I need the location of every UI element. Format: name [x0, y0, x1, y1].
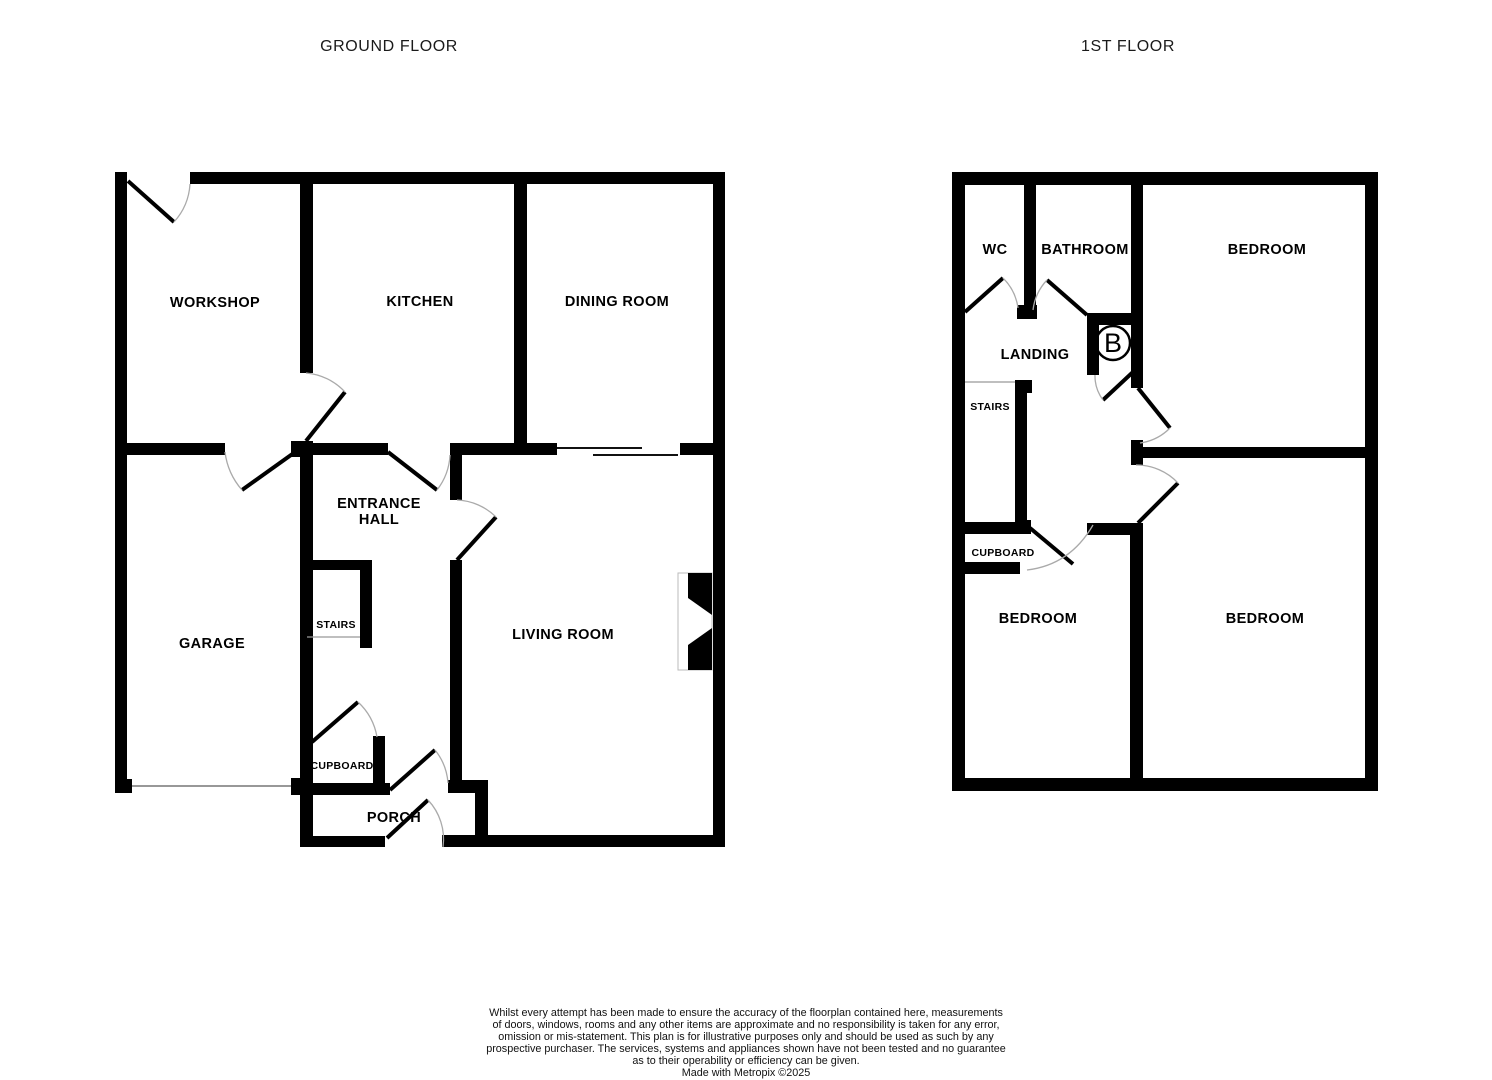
door-leaf — [390, 750, 435, 790]
door-swing-arc — [358, 702, 377, 737]
room-label-bathroom: BATHROOM — [1041, 242, 1129, 258]
door-swing-arc — [435, 750, 448, 783]
room-label-bedroom-top: BEDROOM — [1228, 242, 1307, 258]
wall-segment — [300, 836, 385, 847]
wall-segment — [300, 441, 313, 795]
door-leaf — [1103, 372, 1133, 400]
wall-segment — [1024, 185, 1036, 317]
room-label-porch: PORCH — [367, 810, 421, 826]
wall-segment — [1365, 172, 1378, 790]
room-label-bedroom-left: BEDROOM — [999, 611, 1078, 627]
room-label-stairs-first: STAIRS — [970, 401, 1010, 413]
wall-segment — [450, 443, 462, 500]
wall-segment — [450, 443, 557, 455]
wall-segment — [1087, 523, 1142, 535]
door-leaf — [306, 392, 345, 441]
room-label-garage: GARAGE — [179, 636, 245, 652]
door-swing-arc — [437, 455, 450, 490]
wall-segment — [1131, 447, 1367, 458]
wall-segment — [965, 522, 1030, 534]
room-label-entrance-hall: ENTRANCE — [337, 496, 421, 512]
room-label-landing: LANDING — [1001, 347, 1070, 363]
floorplan-canvas: GROUND FLOOR 1ST FLOOR — [0, 0, 1492, 1080]
wall-segment — [1015, 380, 1027, 523]
door-leaf — [457, 517, 496, 560]
door-leaf — [1138, 388, 1170, 428]
door-leaf — [388, 452, 437, 490]
wall-segment — [313, 560, 361, 570]
wall-segment — [475, 793, 488, 836]
disclaimer-line: Whilst every attempt has been made to en… — [0, 1007, 1492, 1019]
wall-segment — [300, 184, 313, 373]
room-label-workshop: WORKSHOP — [170, 295, 260, 311]
door-swing-arc — [174, 184, 190, 222]
wall-segment — [360, 560, 372, 648]
disclaimer-line: as to their operability or efficiency ca… — [0, 1055, 1492, 1067]
room-label-bedroom-right: BEDROOM — [1226, 611, 1305, 627]
wall-segment — [713, 172, 725, 847]
door-swing-arc — [457, 500, 496, 517]
room-label-entrance-hall: HALL — [359, 512, 399, 528]
room-label-dining-room: DINING ROOM — [565, 294, 669, 310]
door-swing-arc — [1095, 375, 1103, 400]
wall-segment — [442, 835, 725, 847]
room-label-kitchen: KITCHEN — [386, 294, 453, 310]
door-leaf — [1030, 528, 1073, 564]
metropix-credit: Made with Metropix ©2025 — [0, 1067, 1492, 1079]
wall-segment — [115, 172, 127, 793]
door-swing-arc — [1003, 278, 1018, 308]
wall-segment — [952, 172, 1378, 185]
room-label-cupboard-first: CUPBOARD — [971, 547, 1034, 559]
door-swing-arc — [1136, 465, 1178, 483]
room-label-wc: WC — [983, 242, 1008, 258]
wall-segment — [680, 443, 713, 455]
wall-segment — [373, 736, 385, 783]
wall-segment — [1131, 185, 1143, 388]
wall-segment — [1130, 523, 1143, 778]
door-leaf — [242, 450, 298, 490]
wall-segment — [313, 443, 388, 455]
first-floor-title: 1ST FLOOR — [1081, 38, 1175, 55]
wall-segment — [450, 560, 462, 782]
floorplan-page: GROUND FLOOR 1ST FLOOR — [0, 0, 1492, 1080]
door-swing-arc — [428, 800, 444, 847]
wall-segment — [965, 562, 1020, 574]
wall-segment — [1015, 380, 1032, 393]
disclaimer-line: of doors, windows, rooms and any other i… — [0, 1019, 1492, 1031]
wall-segment — [291, 778, 312, 795]
fireplace — [678, 573, 712, 670]
disclaimer-line: omission or mis-statement. This plan is … — [0, 1031, 1492, 1043]
door-leaf — [965, 278, 1003, 312]
disclaimer-line: prospective purchaser. The services, sys… — [0, 1043, 1492, 1055]
disclaimer: Whilst every attempt has been made to en… — [0, 1007, 1492, 1079]
wall-segment — [115, 779, 132, 793]
wall-segment — [115, 443, 225, 455]
wall-segment — [190, 172, 725, 184]
wall-segment — [952, 778, 1378, 791]
door-swing-arc — [1140, 428, 1170, 443]
door-swing-arc — [225, 452, 242, 490]
wall-segment — [514, 184, 527, 455]
room-label-cupboard: CUPBOARD — [310, 760, 373, 772]
door-leaf — [128, 181, 174, 222]
first-floor-walls — [952, 172, 1378, 791]
door-leaf — [1047, 280, 1087, 315]
boiler-letter: B — [1104, 328, 1122, 358]
boiler-symbol: B — [1096, 326, 1130, 360]
ground-floor-title: GROUND FLOOR — [320, 38, 458, 55]
wall-segment — [952, 172, 965, 790]
wall-segment — [448, 780, 488, 793]
door-leaf — [312, 702, 358, 742]
room-label-stairs: STAIRS — [316, 619, 356, 631]
door-swing-arc — [306, 373, 345, 392]
room-label-living-room: LIVING ROOM — [512, 627, 614, 643]
door-leaf — [1138, 483, 1178, 523]
